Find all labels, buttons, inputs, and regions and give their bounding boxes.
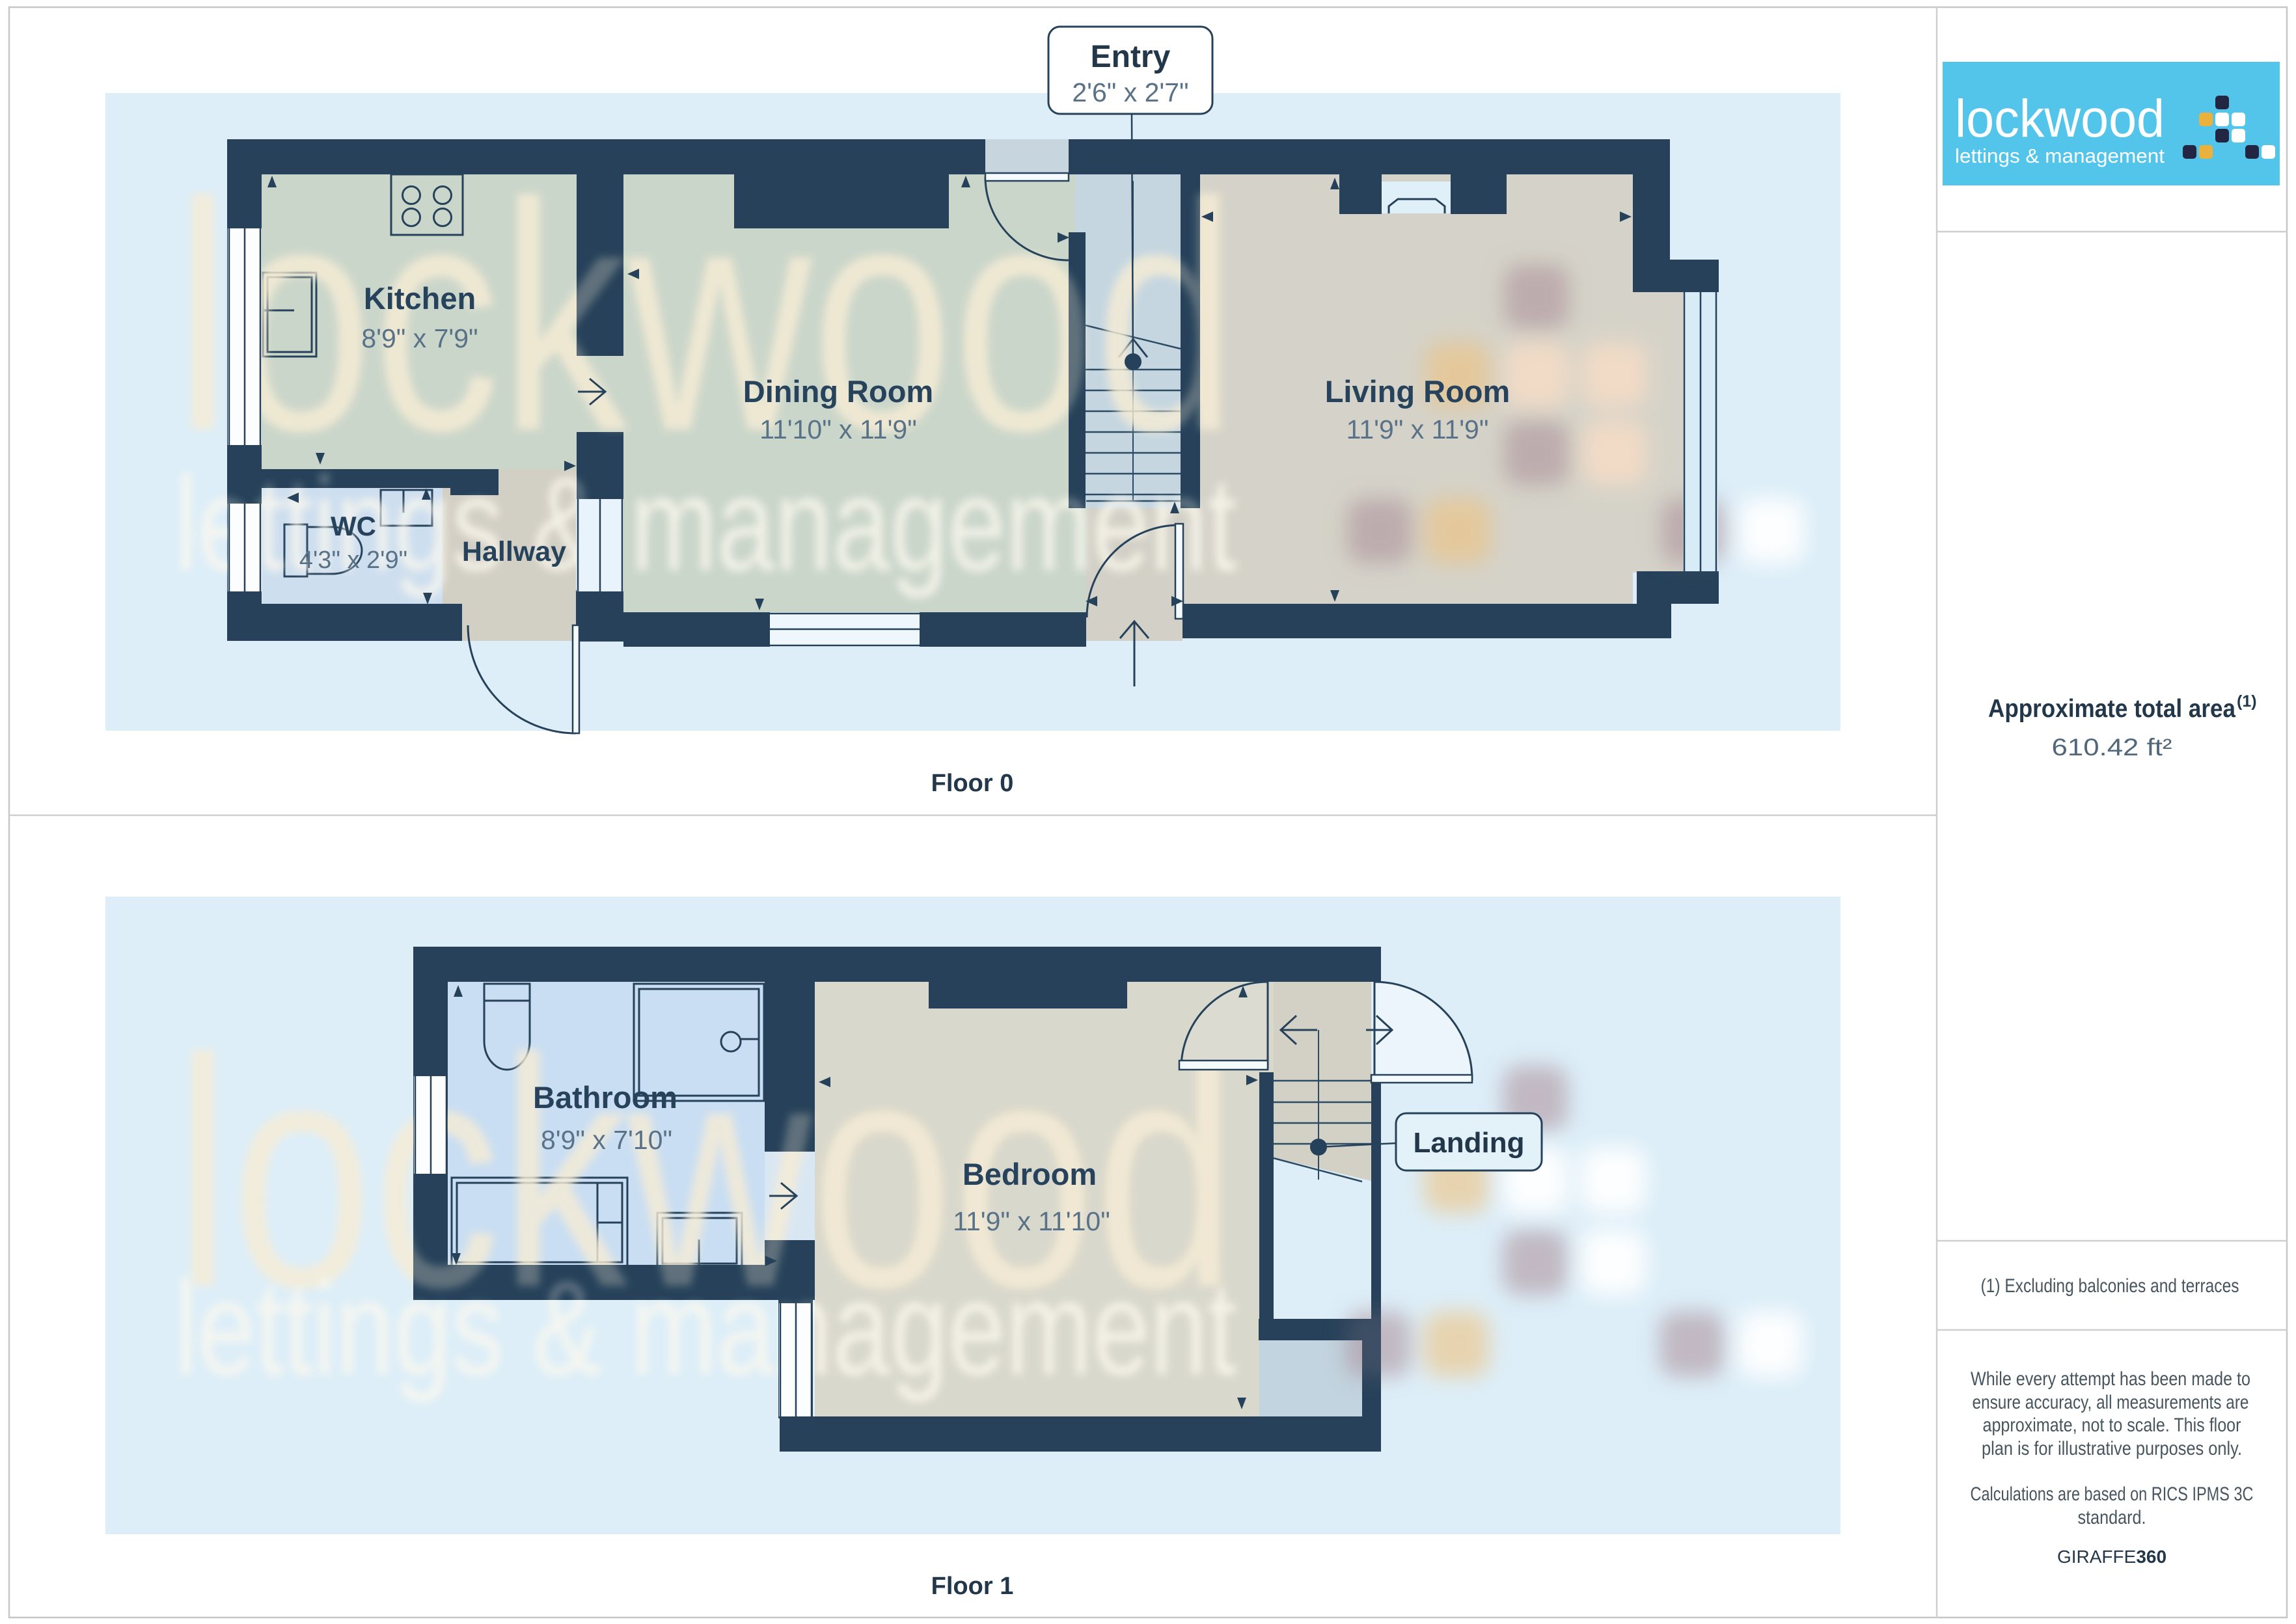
svg-text:4'3" x 2'9": 4'3" x 2'9" — [299, 547, 407, 574]
svg-text:2'6" x 2'7": 2'6" x 2'7" — [1072, 77, 1188, 107]
svg-text:11'10" x 11'9": 11'10" x 11'9" — [759, 414, 917, 444]
svg-text:Floor 0: Floor 0 — [931, 770, 1014, 797]
svg-text:standard.: standard. — [2078, 1507, 2146, 1528]
svg-text:lettings & management: lettings & management — [1955, 144, 2165, 167]
svg-text:8'9" x 7'9": 8'9" x 7'9" — [361, 323, 478, 353]
svg-text:WC: WC — [331, 511, 376, 541]
svg-text:ensure accuracy, all measureme: ensure accuracy, all measurements are — [1973, 1392, 2249, 1413]
svg-text:Approximate total area: Approximate total area — [1988, 695, 2235, 723]
svg-text:(1) Excluding balconies and te: (1) Excluding balconies and terraces — [1981, 1275, 2239, 1297]
svg-text:Kitchen: Kitchen — [364, 281, 476, 316]
svg-text:plan is for illustrative purpo: plan is for illustrative purposes only. — [1982, 1438, 2242, 1459]
svg-text:Landing: Landing — [1413, 1127, 1524, 1159]
svg-text:Entry: Entry — [1091, 40, 1171, 74]
svg-text:Bathroom: Bathroom — [533, 1080, 677, 1115]
svg-text:approximate, not to scale. Thi: approximate, not to scale. This floor — [1983, 1414, 2241, 1436]
svg-text:Living Room: Living Room — [1325, 374, 1510, 409]
svg-text:While every attempt has been m: While every attempt has been made to — [1971, 1368, 2250, 1390]
svg-text:Calculations are based on RICS: Calculations are based on RICS IPMS 3C — [1971, 1483, 2254, 1505]
svg-text:Bedroom: Bedroom — [963, 1157, 1097, 1191]
svg-text:11'9" x 11'9": 11'9" x 11'9" — [1346, 414, 1489, 444]
svg-text:Hallway: Hallway — [462, 536, 566, 567]
svg-text:Dining Room: Dining Room — [743, 374, 933, 409]
svg-text:(1): (1) — [2237, 692, 2257, 710]
svg-text:8'9" x 7'10": 8'9" x 7'10" — [541, 1125, 672, 1155]
svg-text:11'9" x 11'10": 11'9" x 11'10" — [953, 1206, 1110, 1236]
svg-text:GIRAFFE360: GIRAFFE360 — [2057, 1547, 2166, 1567]
svg-text:Floor 1: Floor 1 — [931, 1573, 1014, 1600]
svg-text:lockwood: lockwood — [1955, 89, 2165, 148]
svg-text:610.42 ft²: 610.42 ft² — [2052, 734, 2172, 761]
